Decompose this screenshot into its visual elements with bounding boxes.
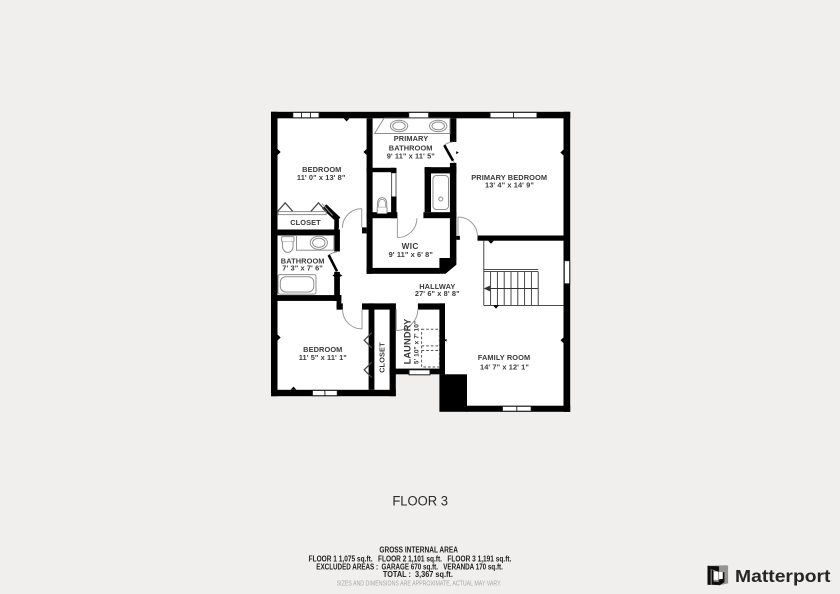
svg-text:FLOOR 3: FLOOR 3	[392, 494, 448, 510]
svg-text:CLOSET: CLOSET	[378, 342, 387, 373]
svg-text:CLOSET: CLOSET	[290, 218, 321, 227]
svg-text:27' 6" x 8' 8": 27' 6" x 8' 8"	[415, 289, 460, 298]
svg-text:Matterport: Matterport	[735, 566, 831, 586]
svg-text:LAUNDRY: LAUNDRY	[402, 318, 412, 365]
svg-text:9' 11" x 6' 8": 9' 11" x 6' 8"	[389, 250, 434, 259]
svg-text:7' 3" x 7' 6": 7' 3" x 7' 6"	[282, 264, 323, 273]
svg-text:14' 7" x 12' 1": 14' 7" x 12' 1"	[480, 362, 529, 371]
svg-text:SIZES AND DIMENSIONS ARE APPRO: SIZES AND DIMENSIONS ARE APPROXIMATE, AC…	[337, 581, 502, 588]
svg-text:11' 5" x 11' 1": 11' 5" x 11' 1"	[299, 353, 348, 362]
svg-text:13' 4" x 14' 9": 13' 4" x 14' 9"	[485, 181, 534, 190]
svg-text:5' 10" x 7' 10": 5' 10" x 7' 10"	[413, 321, 420, 364]
svg-text:PRIMARY: PRIMARY	[394, 134, 429, 143]
svg-text:TOTAL : 3,367 sq.ft.: TOTAL : 3,367 sq.ft.	[383, 569, 453, 579]
svg-text:FAMILY ROOM: FAMILY ROOM	[478, 353, 530, 362]
svg-text:11' 0" x 13' 8": 11' 0" x 13' 8"	[297, 173, 346, 182]
svg-text:9' 11" x 11' 5": 9' 11" x 11' 5"	[387, 152, 436, 161]
